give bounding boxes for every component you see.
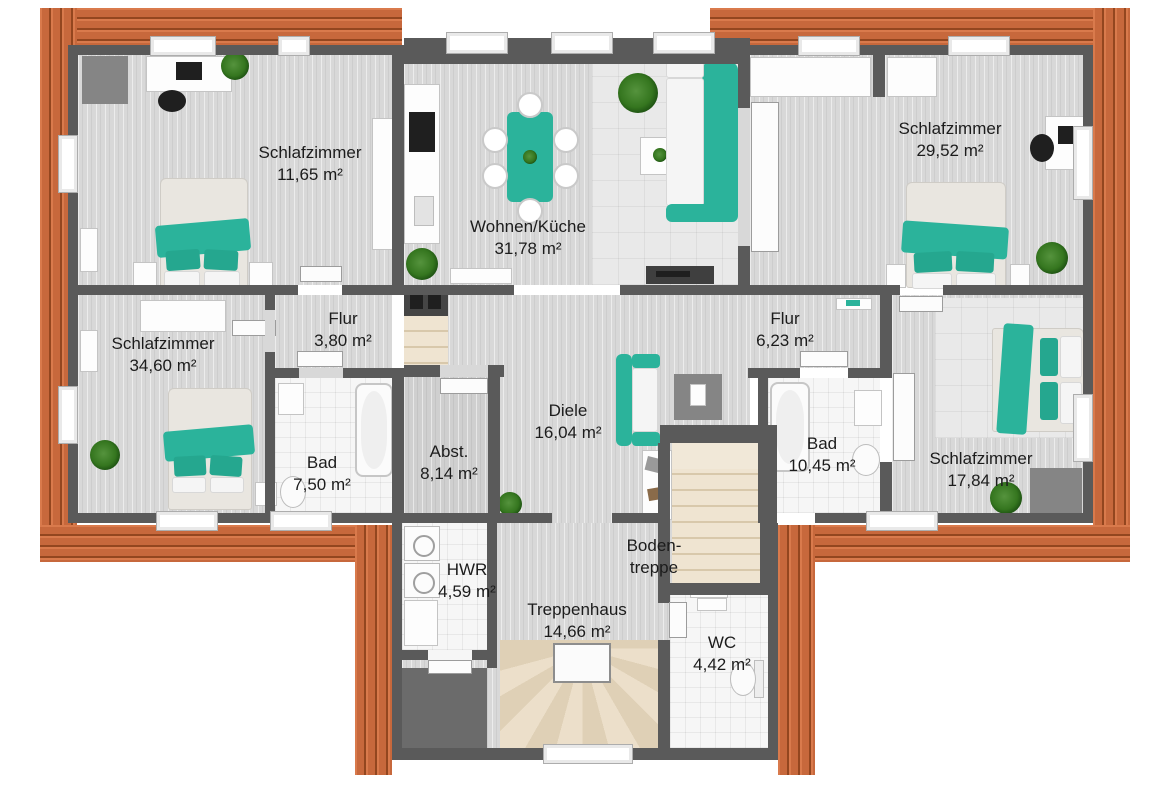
window-stair-bottom xyxy=(543,744,633,764)
deco-flur-right xyxy=(846,300,860,306)
door-gap-hwr xyxy=(428,650,472,660)
dining-chair-5 xyxy=(553,127,579,153)
window-left-side-2 xyxy=(58,386,78,444)
room-label-flur-left: Flur 3,80 m² xyxy=(263,308,423,352)
wall-left-mid-2 xyxy=(342,285,404,295)
door-bad-right xyxy=(800,351,848,367)
room-area: 29,52 m² xyxy=(870,140,1030,162)
desk-chair-top-right xyxy=(1030,134,1054,162)
room-name: Abst. xyxy=(369,441,529,463)
wc-sink xyxy=(697,598,727,611)
closet-top-right-2 xyxy=(887,57,937,97)
room-label-wc: WC 4,42 m² xyxy=(642,632,802,676)
wall-right-wing-bottom xyxy=(815,513,1093,523)
room-label-schlafzimmer-right: Schlafzimmer 17,84 m² xyxy=(901,448,1061,492)
plant-living xyxy=(618,73,658,113)
room-area: 8,14 m² xyxy=(369,463,529,485)
wall-treppenhaus-top-r xyxy=(612,513,668,523)
room-name: HWR xyxy=(387,559,547,581)
window-right-bottom xyxy=(866,511,938,531)
coffee-table-deco xyxy=(653,148,667,162)
kitchen-sink xyxy=(414,196,434,226)
floor-storage-nook xyxy=(402,668,487,748)
room-area: 17,84 m² xyxy=(901,470,1061,492)
wall-flur-bad-right-1 xyxy=(748,368,800,378)
entry-cabinet-door-1 xyxy=(410,295,423,309)
room-area: 34,60 m² xyxy=(83,355,243,377)
dining-chair-3 xyxy=(482,127,508,153)
plant-bedroom-top-right xyxy=(1036,242,1068,274)
sofa-chaise xyxy=(666,62,704,78)
bed-tr-pillow-teal-1 xyxy=(914,251,953,273)
room-label-bad-right: Bad 10,45 m² xyxy=(742,433,902,477)
room-name: Boden-treppe xyxy=(614,535,694,579)
room-name: Treppenhaus xyxy=(497,599,657,621)
entry-cabinet-door-2 xyxy=(428,295,441,309)
dining-chair-4 xyxy=(482,163,508,189)
window-left-bottom-1 xyxy=(156,511,218,531)
bed-left-pillow-white-2 xyxy=(210,477,244,493)
staircase-opening xyxy=(553,643,611,683)
closet-row-top-right xyxy=(750,57,871,97)
door-hwr xyxy=(428,660,472,674)
dining-chair-1 xyxy=(517,92,543,118)
dining-chair-6 xyxy=(553,163,579,189)
wall-attic-stair-left xyxy=(658,443,670,603)
floor-plan: Schlafzimmer 11,65 m² Wohnen/Küche 31,78… xyxy=(0,0,1170,785)
door-abstellraum xyxy=(440,378,488,394)
sideboard-kitchen xyxy=(450,268,512,284)
window-dormer-1 xyxy=(446,32,508,54)
desk-chair-top-left xyxy=(158,90,186,112)
window-left-top-2 xyxy=(278,36,310,56)
room-name: Flur xyxy=(263,308,423,330)
sofa-back xyxy=(702,62,738,222)
roof-tiles-right-top xyxy=(710,8,1130,45)
wall-left-wing-left xyxy=(68,45,78,523)
wall-stub-bedroom-tr xyxy=(873,55,885,97)
plant-bedroom-top-left xyxy=(221,52,249,80)
room-label-schlafzimmer-left: Schlafzimmer 34,60 m² xyxy=(83,333,243,377)
door-bad-left xyxy=(297,351,343,367)
room-area: 6,23 m² xyxy=(705,330,865,352)
bed-pillow-teal-2 xyxy=(203,249,238,271)
plant-kitchen xyxy=(406,248,438,280)
window-left-side-1 xyxy=(58,135,78,193)
projector-diele xyxy=(690,384,706,406)
wall-left-wing-bottom xyxy=(68,513,392,523)
wall-left-shared-upper xyxy=(392,45,404,295)
room-label-bodentreppe: Boden-treppe xyxy=(614,535,694,579)
room-area: 31,78 m² xyxy=(448,238,608,260)
window-right-side-2 xyxy=(1073,394,1093,462)
room-name: Schlafzimmer xyxy=(901,448,1061,470)
wall-right-mid xyxy=(943,285,1093,295)
room-label-diele: Diele 16,04 m² xyxy=(488,400,648,444)
room-name: Flur xyxy=(705,308,865,330)
room-label-treppenhaus: Treppenhaus 14,66 m² xyxy=(497,599,657,643)
bed-r-pillow-teal-1 xyxy=(1040,338,1058,376)
window-right-top-2 xyxy=(948,36,1010,56)
bed-left-pillow-white-1 xyxy=(172,477,206,493)
room-label-schlafzimmer-top-right: Schlafzimmer 29,52 m² xyxy=(870,118,1030,162)
room-label-schlafzimmer-top-left: Schlafzimmer 11,65 m² xyxy=(230,142,390,186)
roof-tiles-right-side xyxy=(1093,8,1130,562)
room-label-abstellraum: Abst. 8,14 m² xyxy=(369,441,529,485)
window-left-top-1 xyxy=(150,36,216,56)
wall-treppenhaus-top-l xyxy=(392,513,552,523)
window-left-bottom-2 xyxy=(270,511,332,531)
bed-left-pillow-teal-1 xyxy=(173,455,206,477)
door-living-bedroom xyxy=(751,102,779,252)
window-right-side-1 xyxy=(1073,126,1093,200)
cooktop xyxy=(409,112,435,152)
room-label-wohnen-kueche: Wohnen/Küche 31,78 m² xyxy=(448,216,608,260)
room-area: 4,42 m² xyxy=(642,654,802,676)
room-name: Bad xyxy=(742,433,902,455)
door-bedroom-top-left xyxy=(300,266,342,282)
room-name: Schlafzimmer xyxy=(230,142,390,164)
window-right-top-1 xyxy=(798,36,860,56)
wardrobe-bedroom-left xyxy=(140,300,226,332)
wall-attic-stair-bottom xyxy=(670,583,777,595)
sofa-arm xyxy=(666,204,738,222)
bed-tr-pillow-teal-2 xyxy=(956,251,995,273)
wall-kitchen-bottom-r xyxy=(620,285,900,295)
room-area: 10,45 m² xyxy=(742,455,902,477)
hwr-shelf xyxy=(404,600,438,646)
window-dormer-2 xyxy=(551,32,613,54)
laptop-top-left xyxy=(176,62,202,80)
dining-centerpiece xyxy=(523,150,537,164)
wall-left-mid xyxy=(68,285,298,295)
wall-flur-bad-right-2 xyxy=(848,368,892,378)
room-label-flur-right: Flur 6,23 m² xyxy=(705,308,865,352)
wall-left-wing-top xyxy=(68,45,402,55)
bed-r-pillow-white-1 xyxy=(1060,336,1082,378)
room-name: Schlafzimmer xyxy=(83,333,243,355)
room-name: Diele xyxy=(488,400,648,422)
nightstand-tl-right xyxy=(249,262,273,286)
room-name: Wohnen/Küche xyxy=(448,216,608,238)
bed-left-pillow-teal-2 xyxy=(209,455,242,477)
door-gap-abstellraum xyxy=(440,365,488,377)
roof-tiles-right-bottom xyxy=(778,525,1130,562)
bed-r-pillow-teal-2 xyxy=(1040,382,1058,420)
roof-tiles-left-top xyxy=(40,8,402,45)
wall-kitchen-bottom-l xyxy=(404,285,514,295)
washing-machine xyxy=(404,526,440,561)
sink-bad-left xyxy=(278,383,304,415)
room-label-hwr: HWR 4,59 m² xyxy=(387,559,547,603)
window-dormer-3 xyxy=(653,32,715,54)
door-gap-bad-left xyxy=(299,368,343,378)
room-area: 3,80 m² xyxy=(263,330,423,352)
loveseat-arm-top xyxy=(632,354,660,368)
bed-pillow-teal-1 xyxy=(165,249,200,271)
dresser-bedroom-top-left xyxy=(80,228,98,272)
room-area: 11,65 m² xyxy=(230,164,390,186)
nightstand-tl-left xyxy=(133,262,157,286)
sofa-seats xyxy=(666,78,704,206)
tv xyxy=(656,271,690,277)
door-gap-living-bedroom xyxy=(738,108,750,246)
door-bedroom-top-right xyxy=(899,296,943,312)
sink-bad-right xyxy=(854,390,882,426)
room-name: WC xyxy=(642,632,802,654)
rug-bedroom-top-left xyxy=(82,56,128,104)
room-area: 14,66 m² xyxy=(497,621,657,643)
wall-bedroom17-divider-top xyxy=(880,295,892,372)
room-name: Schlafzimmer xyxy=(870,118,1030,140)
plant-bedroom-left xyxy=(90,440,120,470)
